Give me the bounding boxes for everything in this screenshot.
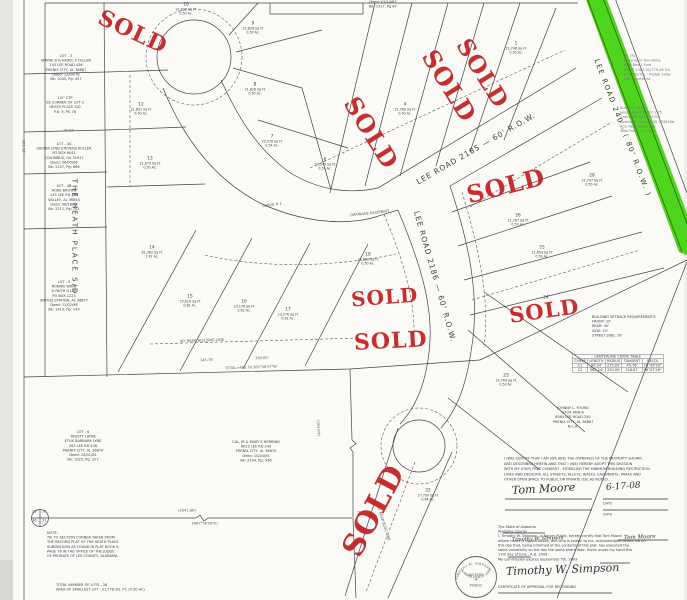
lot-ac: 0.53 Ac. <box>295 166 355 170</box>
text-block: The State of Alabama Alabama CountyI, Ti… <box>498 525 687 562</box>
road-label: THE HEATH PLACE S/D <box>70 179 78 296</box>
lot-label: 821,826 Sq Ft0.50 Ac. <box>225 82 285 95</box>
text-block: TOTAL NUMBER OF LOTS - 28AREA OF SMALLES… <box>56 583 256 592</box>
text-line: N.C.A. <box>526 424 620 429</box>
text-line: Bk: 2211, Pg: 702 <box>28 207 100 212</box>
text-block: I (WE) CERTIFY THAT I AM (WE ARE) THE OW… <box>504 456 676 482</box>
text-block: BUILDING SETBACK REQUIREMENTS:FRONT: 25'… <box>592 315 684 338</box>
text-block: 31 7%Reserve in the HomeRLW Box 1 Fore58… <box>624 54 687 82</box>
dimension-label: 150.00' <box>255 356 269 361</box>
text-line: AREA OF SMALLEST LOT - 21,778 SQ. FT. (0… <box>56 588 256 593</box>
lot-ac: 0.50 Ac. <box>562 182 622 186</box>
lot-ac: 0.61 Ac. <box>258 316 318 320</box>
lot-label: 1321,875 Sq Ft0.50 Ac. <box>120 156 180 169</box>
text-block: JOHNNY L. YOUNGETUX ANN B6084 LEE ROAD 2… <box>526 406 620 429</box>
centerline-curve-table: CENTERLINE CURVE TABLECURVELENGTHRADIUST… <box>572 354 663 373</box>
lot-label: 723,578 Sq Ft0.54 Ac. <box>242 134 302 147</box>
curve-table-cell: C2 <box>572 368 587 373</box>
text-block: BudaPrk 35/36Jane/Colbert 8350C / 75Gran… <box>620 106 687 134</box>
curve-table: CENTERLINE CURVE TABLECURVELENGTHRADIUST… <box>572 354 663 373</box>
text-line: Lee Counter AL <box>624 77 687 82</box>
lot-label: 1821,890 Sq Ft0.50 Ac. <box>338 252 398 265</box>
lot-ac: 0.50 Ac. <box>120 165 180 169</box>
dimension-label: 145.78' <box>200 358 214 363</box>
lot-label: 1021,826 Sq Ft0.50 Ac. <box>156 2 216 15</box>
dimension-label: 302.18' <box>22 140 26 153</box>
lot-label: 1221,801 Sq Ft0.50 Ac. <box>111 102 171 115</box>
lot-label: 2227,709 Sq Ft0.64 Ac. <box>398 488 458 501</box>
lot-label: 921,826 Sq Ft0.50 Ac. <box>223 21 283 34</box>
text-block: NOTE:TIE TO SECTION CORNER TAKEN FROMTHE… <box>47 531 161 559</box>
dimension-label: 25 <box>32 509 37 513</box>
sold-stamp: SOLD <box>350 285 419 310</box>
signature: Tom Moore <box>624 534 656 541</box>
lot-label: 2321,764 Sq Ft0.50 Ac. <box>476 373 536 386</box>
lot-label: 122,748 Sq Ft0.50 Ac. <box>486 41 546 54</box>
lot-ac: 0.50 Ac. <box>512 254 572 258</box>
text-block: LOT - 4BHOKE BROWN143 LEE RD 360VALLEY, … <box>28 184 100 212</box>
text-block: LOT - 3WAYNE B & HAZEL S FULLER143 LEE R… <box>24 54 108 82</box>
lot-label: 1461,362 Sq Ft1.42 Ac. <box>122 245 182 258</box>
lot-label: 2821,747 Sq Ft0.50 Ac. <box>562 173 622 186</box>
dimension-label: (N87°58'06"E) <box>192 521 218 525</box>
text-line: Bk: 1317, Pg 87 <box>350 5 416 10</box>
text-line: OTHER OPEN SPACE TO PUBLIC OR PRIVATE US… <box>504 477 676 482</box>
text-block: LOT - 4ASHIDRA LYNN STEVENS KOLLERPO BOX… <box>20 142 108 170</box>
text-block: 1/2" CTPSE CORNER OF LOT 3HEATH PLACE S/… <box>28 96 102 114</box>
lot-ac: 0.50 Ac. <box>338 261 398 265</box>
dimension-label: 30 <box>42 509 47 513</box>
dimension-label: DATE <box>603 501 612 505</box>
text-line: Total Fees) - $ 35.00 <box>620 129 687 134</box>
scan-edge-corner <box>0 560 13 600</box>
lot-ac: 1.42 Ac. <box>122 254 182 258</box>
lot-ac: 0.62 Ac. <box>160 303 220 307</box>
lot-ac: 0.64 Ac. <box>398 497 458 501</box>
lot-ac: 0.50 Ac. <box>476 382 536 386</box>
lot-label: 1525,616 Sq Ft0.62 Ac. <box>160 294 220 307</box>
dimension-label: DATE <box>603 512 612 516</box>
seal-center-public: PUBLIC <box>470 584 483 588</box>
lot-ac: 0.50 Ac. <box>486 50 546 54</box>
dimension-label: 18.02' <box>63 128 74 132</box>
scan-edge-left <box>0 0 13 600</box>
lot-label: 2521,854 Sq Ft0.50 Ac. <box>512 245 572 258</box>
lot-ac: 0.50 Ac. <box>488 222 548 226</box>
dimension-label: 36 <box>32 518 37 522</box>
lot-label: 623,579 Sq Ft0.53 Ac. <box>295 157 355 170</box>
text-block: LOT - 5RONNIE WINN& FAITH G LEEPO BOX 12… <box>24 280 104 312</box>
lot-label: 2621,767 Sq Ft0.50 Ac. <box>488 213 548 226</box>
lot-ac: 0.50 Ac. <box>156 11 216 15</box>
text-block: LOT - 6TRUSTY LAYNEETUX BARBARA LYNE263 … <box>40 430 126 462</box>
curve-table-cell: 565.24' <box>588 368 606 373</box>
sold-stamp: SOLD <box>353 328 428 354</box>
text-line: Bk: 1045, Pg: 457 <box>24 77 108 82</box>
text-line: OF PROBATE OF LEE COUNTY, ALABAMA. <box>47 554 161 559</box>
text-line: Bk: 1413, Pg: 143 <box>24 308 104 313</box>
text-line: P.B. 9, PG 76 <box>28 110 102 115</box>
text-line: Bk: 1025, Pg: 327 <box>40 458 126 463</box>
text-line: Bk: 2257, Pg: 866 <box>20 165 108 170</box>
curve-table-cell: 330.00' <box>605 368 622 373</box>
text-block: CAL, JR & MARY E HERRING6023 LEE RD 240P… <box>194 440 318 463</box>
text-line: STREET SIDE: 20' <box>592 333 684 338</box>
dimension-label: (2641.86') <box>178 508 197 512</box>
text-line: Bk: 2294, Pg: 936 <box>194 458 318 463</box>
plat-map-page: TIMOTHY W. SIMPSON ALABAMA STATE AT LARG… <box>0 0 687 600</box>
curve-table-cell: 98°07'26" <box>642 368 663 373</box>
lot-ac: 0.50 Ac. <box>375 111 435 115</box>
lot-label: 1723,278 Sq Ft0.61 Ac. <box>258 307 318 320</box>
certificate-of-approval-heading: CERTIFICATE OF APPROVAL FOR RECORDING <box>498 585 576 589</box>
dimension-label: 31 <box>42 518 47 522</box>
lot-ac: 0.54 Ac. <box>242 143 302 147</box>
text-block: Deed: 07/14/87Bk: 1317, Pg 87 <box>350 0 416 9</box>
lot-ac: 0.50 Ac. <box>111 111 171 115</box>
lot-ac: 0.50 Ac. <box>225 91 285 95</box>
lot-ac: 0.50 Ac. <box>223 30 283 34</box>
curve-table-cell: 318.67' <box>622 368 642 373</box>
lot-label: 421,780 Sq Ft0.50 Ac. <box>375 102 435 115</box>
